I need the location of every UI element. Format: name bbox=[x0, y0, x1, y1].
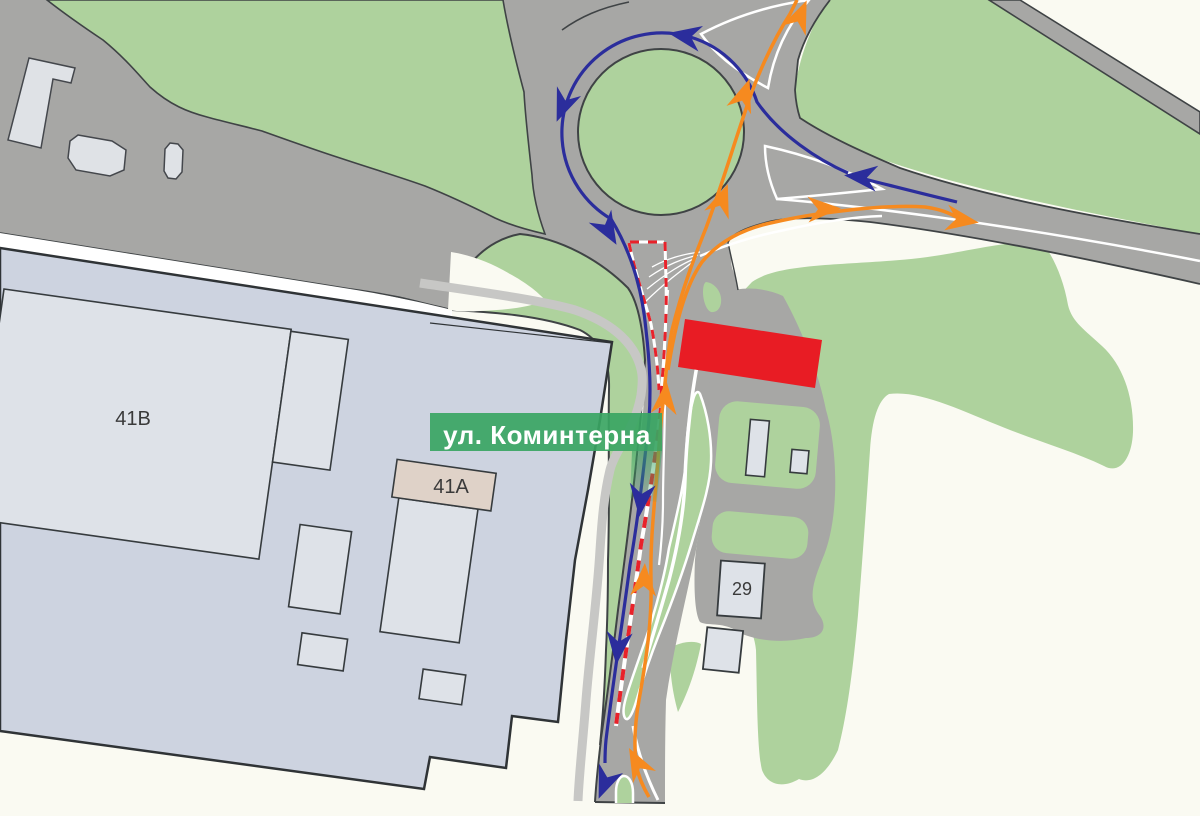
svg-text:ул. Коминтерна: ул. Коминтерна bbox=[443, 420, 651, 450]
svg-text:29: 29 bbox=[732, 579, 752, 599]
svg-text:41B: 41B bbox=[115, 408, 151, 430]
svg-text:41A: 41A bbox=[433, 476, 469, 498]
